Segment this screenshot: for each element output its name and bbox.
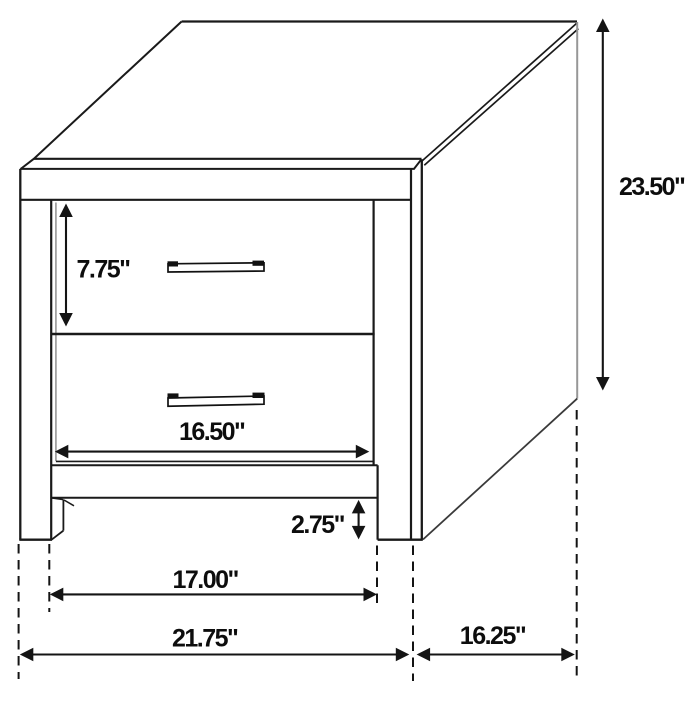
svg-text:17.00": 17.00" [173,566,239,594]
svg-text:16.25": 16.25" [460,622,526,650]
svg-text:23.50": 23.50" [619,173,685,201]
svg-text:2.75": 2.75" [291,511,345,539]
svg-text:7.75": 7.75" [77,256,131,284]
svg-text:16.50": 16.50" [179,418,245,446]
svg-text:21.75": 21.75" [172,625,238,653]
